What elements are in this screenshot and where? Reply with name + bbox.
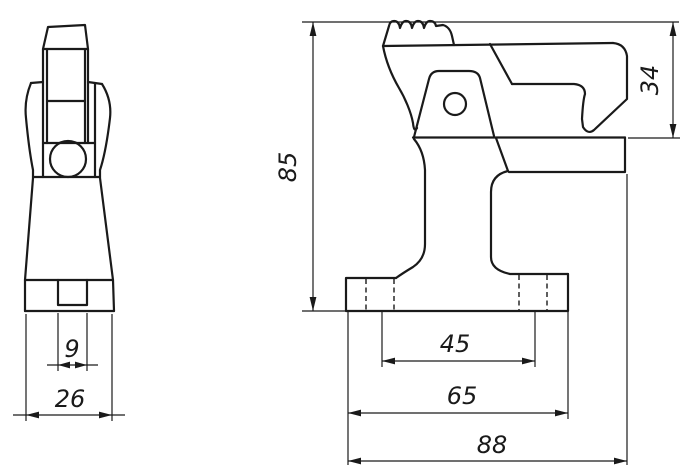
pivot-hole	[444, 93, 466, 115]
arrowhead-bottom	[670, 124, 677, 138]
arrowhead-top	[310, 22, 317, 36]
clamp-arm-hook	[512, 43, 627, 132]
dim-slot-spacing-45: 45	[382, 312, 535, 367]
technical-drawing: 9 26	[0, 0, 700, 469]
serration-teeth	[383, 21, 454, 46]
prong-tops	[31, 82, 102, 177]
catch-bar	[496, 138, 625, 173]
side-view: 85 34 45 65	[274, 21, 680, 465]
dim-26-label: 26	[55, 385, 86, 413]
hidden-slot-lines	[366, 275, 547, 310]
arrowhead-left	[382, 358, 395, 365]
arrowhead-top	[670, 22, 677, 36]
arrowhead-left	[348, 458, 361, 465]
base-slot	[58, 280, 87, 305]
base-flange	[346, 274, 568, 311]
column-right-edge	[491, 171, 568, 274]
dim-65-label: 65	[447, 382, 478, 410]
dim-45-label: 45	[440, 330, 471, 358]
pivot-link	[414, 71, 494, 137]
dim-overall-height-85: 85	[274, 22, 316, 311]
side-view-part	[346, 21, 627, 311]
arrowhead-right	[555, 410, 568, 417]
jaw-front-lobe	[383, 46, 417, 130]
arrowhead-right	[522, 358, 535, 365]
arrowhead-left	[348, 410, 361, 417]
dim-88-label: 88	[477, 431, 508, 459]
arrowhead-right	[99, 412, 112, 419]
dim-9-label: 9	[64, 335, 79, 363]
dim-overall-length-88: 88	[348, 174, 627, 465]
column-left-edge	[396, 139, 425, 278]
dim-jaw-opening-34: 34	[636, 22, 676, 138]
front-view: 9 26	[13, 25, 125, 421]
body-left-edge	[25, 83, 33, 311]
body-right-edge	[100, 84, 114, 311]
pivot-pin-circle	[50, 141, 86, 177]
front-view-part	[25, 25, 114, 311]
dim-34-label: 34	[636, 65, 664, 96]
arrowhead-left	[26, 412, 39, 419]
arrowhead-right	[614, 458, 627, 465]
arrowhead-bottom	[310, 297, 317, 311]
lever-head	[43, 25, 88, 49]
drawing-sheet: 9 26	[0, 0, 700, 469]
arm-bend-edge	[490, 44, 512, 84]
clamp-arm	[383, 43, 613, 46]
dim-85-label: 85	[274, 152, 302, 183]
dim-slot-width-9: 9	[47, 313, 98, 371]
